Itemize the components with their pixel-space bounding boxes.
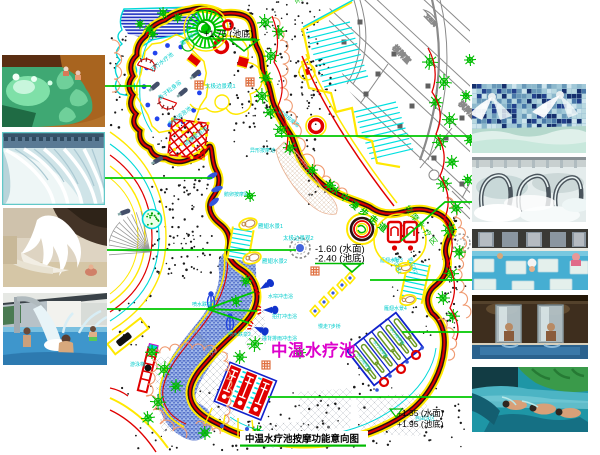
svg-text:+1.35 (水面): +1.35 (水面) — [397, 408, 444, 418]
svg-text:水帘冲击浴: 水帘冲击浴 — [268, 293, 293, 300]
svg-text:+1.75 (池底): +1.75 (池底) — [204, 28, 253, 39]
svg-text:-2.40 (池底): -2.40 (池底) — [315, 253, 365, 265]
svg-text:拍打冲击浴: 拍打冲击浴 — [272, 313, 297, 320]
svg-text:中温水疗池: 中温水疗池 — [271, 340, 356, 360]
svg-text:慢走7步桥: 慢走7步桥 — [318, 323, 341, 330]
svg-text:+1.95 (池底): +1.95 (池底) — [397, 419, 444, 429]
svg-text:中温水疗池按摩功能意向图: 中温水疗池按摩功能意向图 — [245, 433, 359, 445]
svg-text:太极边景观1: 太极边景观1 — [205, 82, 236, 90]
svg-text:雁翅水景2: 雁翅水景2 — [262, 257, 287, 265]
svg-text:太极边景观2: 太极边景观2 — [283, 234, 314, 242]
svg-text:异形按摩池: 异形按摩池 — [250, 147, 275, 154]
svg-text:雁翅水景1: 雁翅水景1 — [258, 222, 283, 230]
svg-text:鹅卵按摩路: 鹅卵按摩路 — [224, 191, 249, 198]
svg-text:雁翅水景4: 雁翅水景4 — [384, 305, 407, 312]
svg-text:喷水跌泉2: 喷水跌泉2 — [228, 331, 251, 338]
svg-text:游泳梯: 游泳梯 — [130, 361, 145, 368]
svg-text:捶背排雨冲击浴: 捶背排雨冲击浴 — [262, 335, 297, 342]
